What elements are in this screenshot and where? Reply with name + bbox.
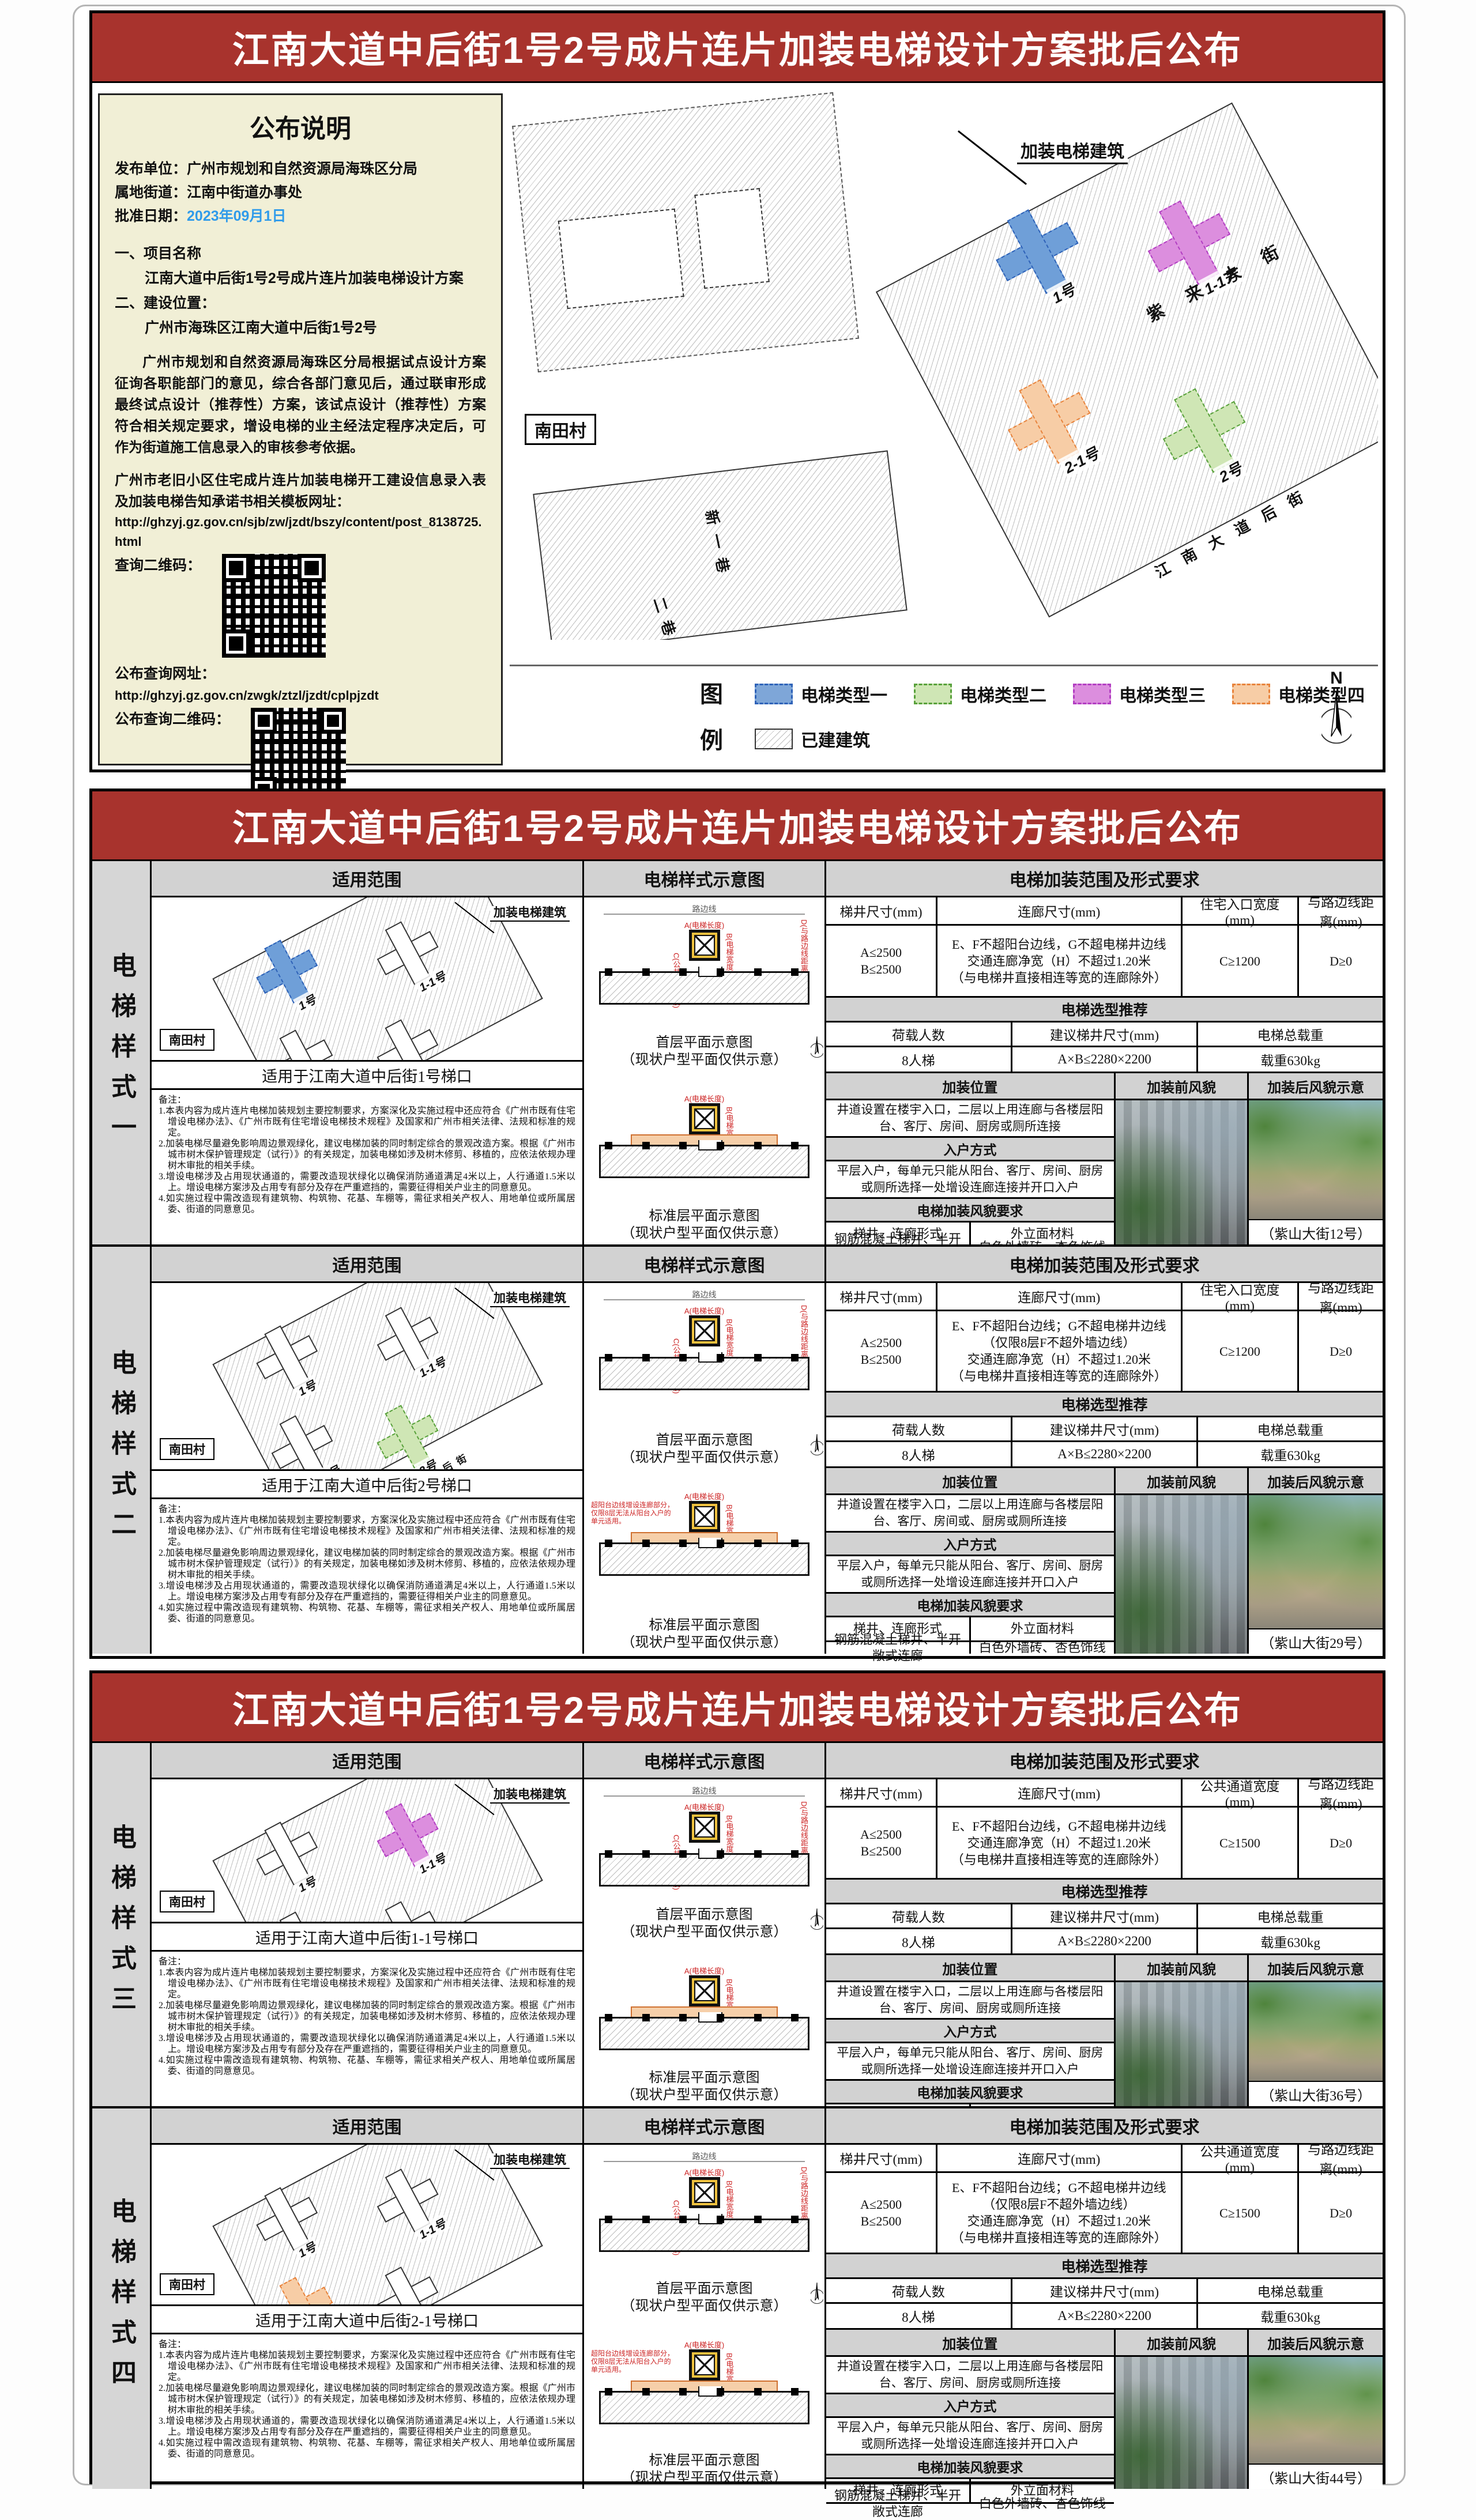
notice-paragraph-2: 广州市老旧小区住宅成片连片加装电梯开工建设信息录入表及加装电梯告知承诺书相关模板… <box>115 470 486 512</box>
compass-icon <box>811 1907 823 1937</box>
notes: 备注： 1.本表内容为成片连片电梯加装规划主要控制要求，方案深化及实施过程中还应… <box>152 1090 582 1244</box>
query-url-label: 公布查询网址： <box>115 662 486 686</box>
col-header-scope: 适用范围 <box>152 861 584 896</box>
panel-title: 江南大道中后街1号2号成片连片加装电梯设计方案批后公布 <box>92 13 1383 83</box>
legend-item: 电梯类型二 <box>914 681 1046 707</box>
photo-after <box>1249 1495 1383 1628</box>
qr2-label: 公布查询二维码： <box>115 708 230 731</box>
col-header-diagram: 电梯样式示意图 <box>584 1743 826 1778</box>
col-header-diagram: 电梯样式示意图 <box>584 2108 826 2143</box>
position-text: 井道设置在楼宇入口，二层以上用连廊与各楼层阳台、客厅、房间、厨房或厕所连接 <box>826 2357 1114 2393</box>
legend-swatch-type1 <box>755 684 793 704</box>
position-text: 井道设置在楼宇入口，二层以上用连廊与各楼层阳台、客厅、房间、厨房或厕所连接 <box>826 1982 1114 2018</box>
photo-before <box>1116 1495 1249 1654</box>
section2-title: 二、建设位置： <box>115 292 486 315</box>
site-map: 1号 1-1号 2-1号 2号 江南大道后街 紫来大街 加装电梯建筑 南田村 新… <box>510 91 1378 640</box>
standard-floor-plan: A(电梯长度) B(电梯宽度) 超阳台边线增设连廊部分，仅限8层无法从阳台入户的… <box>590 1471 819 1615</box>
approval-date: 2023年09月1日 <box>187 208 286 224</box>
notice-heading: 公布说明 <box>115 108 486 145</box>
scope-caption: 适用于江南大道中后街2号梯口 <box>152 1469 582 1499</box>
date-line: 批准日期：2023年09月1日 <box>115 205 486 228</box>
col-header-scope: 适用范围 <box>152 1247 584 1281</box>
standard-floor-caption: 标准层平面示意图（现状户型平面仅供示意） <box>584 2069 824 2106</box>
style-section-4: 电梯样式四 适用范围 电梯样式示意图 电梯加装范围及形式要求 1号 1-1号 2… <box>92 2106 1383 2489</box>
scope-map: 1号 1-1号 2-1号 2号 江南大道后街 加装电梯建筑 南田村 <box>152 897 582 1060</box>
col-header-req: 电梯加装范围及形式要求 <box>826 1247 1383 1281</box>
map-callout: 加装电梯建筑 <box>1017 137 1128 163</box>
scope-map: 1号 1-1号 2-1号 2号 江南大道后街 加装电梯建筑 南田村 <box>152 1779 582 1922</box>
panel-styles-1-2: 江南大道中后街1号2号成片连片加装电梯设计方案批后公布 电梯样式一 适用范围 电… <box>89 789 1385 1659</box>
compass-icon <box>811 1035 823 1065</box>
compass-icon <box>811 1433 823 1463</box>
elevator-shaft-icon <box>689 1812 720 1843</box>
standard-floor-caption: 标准层平面示意图（现状户型平面仅供示意） <box>584 1617 824 1654</box>
requirements-table: 梯井尺寸(mm) 连廊尺寸(mm) 住宅入口宽度(mm) 与路边线距离(mm) … <box>826 897 1383 1244</box>
elevator-shaft-icon <box>689 1103 720 1134</box>
legend-swatch-built <box>755 729 793 749</box>
map-callout: 加装电梯建筑 <box>490 1289 570 1306</box>
entry-text: 平层入户，每单元只能从阳台、客厅、房间、厨房或厕所选择一处增设连廊连接并开口入户 <box>826 1556 1114 1592</box>
first-floor-caption: 首层平面示意图（现状户型平面仅供示意） <box>584 1906 824 1943</box>
entry-text: 平层入户，每单元只能从阳台、客厅、房间、厨房或厕所选择一处增设连廊连接并开口入户 <box>826 1161 1114 1197</box>
first-floor-caption: 首层平面示意图（现状户型平面仅供示意） <box>584 2280 824 2317</box>
notes: 备注： 1.本表内容为成片连片电梯加装规划主要控制要求，方案深化及实施过程中还应… <box>152 2334 582 2489</box>
first-floor-plan: 路边线 A(电梯长度) B(电梯宽度) C(公共通道宽度) D(与路边线距离) <box>590 2147 819 2278</box>
style-row-label: 电梯样式二 <box>92 1247 152 1654</box>
village-label: 南田村 <box>160 2273 214 2295</box>
style-row-label: 电梯样式四 <box>92 2108 152 2489</box>
notice-box: 公布说明 发布单位：广州市规划和自然资源局海珠区分局 属地街道：江南中街道办事处… <box>98 93 503 765</box>
standard-floor-plan: A(电梯长度) B(电梯宽度) <box>590 1945 819 2068</box>
map-callout: 加装电梯建筑 <box>490 903 570 921</box>
standard-floor-plan: A(电梯长度) B(电梯宽度) 超阳台边线增设连廊部分，仅限8层无法从阳台入户的… <box>590 2319 819 2450</box>
panel-styles-3-4: 江南大道中后街1号2号成片连片加装电梯设计方案批后公布 电梯样式三 适用范围 电… <box>89 1670 1385 2484</box>
legend-item-built: 已建建筑 <box>755 726 870 752</box>
qr1-label: 查询二维码： <box>115 554 201 578</box>
photo-after <box>1249 1982 1383 2081</box>
query-url: http://ghzyj.gz.gov.cn/zwgk/ztzl/jzdt/cp… <box>115 686 486 706</box>
photo-after <box>1249 2357 1383 2464</box>
village-label: 南田村 <box>160 1029 214 1051</box>
village-label: 南田村 <box>160 1438 214 1460</box>
section2-text: 广州市海珠区江南大道中后街1号2号 <box>115 316 486 340</box>
col-header-diagram: 电梯样式示意图 <box>584 1247 826 1281</box>
photo-before <box>1116 1982 1249 2106</box>
village-label: 南田村 <box>525 414 596 445</box>
photo-caption: （紫山大街36号） <box>1249 2081 1383 2106</box>
section1-text: 江南大道中后街1号2号成片连片加装电梯设计方案 <box>115 267 486 291</box>
requirements-table: 梯井尺寸(mm) 连廊尺寸(mm) 公共通道宽度(mm) 与路边线距离(mm) … <box>826 2145 1383 2489</box>
first-floor-plan: 路边线 A(电梯长度) B(电梯宽度) C(公共通道宽度) D(与路边线距离) <box>590 1782 819 1904</box>
style-section-3: 电梯样式三 适用范围 电梯样式示意图 电梯加装范围及形式要求 1号 1-1号 2… <box>92 1743 1383 2106</box>
position-text: 井道设置在楼宇入口，二层以上用连廊与各楼层阳台、客厅、房间、厨房或厕所连接 <box>826 1100 1114 1136</box>
legend-swatch-type4 <box>1232 684 1270 704</box>
legend-item: 电梯类型三 <box>1073 681 1206 707</box>
legend-item: 电梯类型一 <box>755 681 887 707</box>
standard-floor-caption: 标准层平面示意图（现状户型平面仅供示意） <box>584 1208 824 1244</box>
panel-title: 江南大道中后街1号2号成片连片加装电梯设计方案批后公布 <box>92 791 1383 861</box>
elevator-shaft-icon <box>689 2349 720 2381</box>
photo-before <box>1116 2357 1249 2489</box>
scope-map: 1号 1-1号 2-1号 2号 江南大道后街 加装电梯建筑 南田村 <box>152 1283 582 1469</box>
first-floor-plan: 路边线 A(电梯长度) B(电梯宽度) C(公共通道宽度) D(与路边线距离) <box>590 1285 819 1429</box>
photo-caption: （紫山大街12号） <box>1249 1219 1383 1244</box>
photo-after <box>1249 1100 1383 1219</box>
panel-title: 江南大道中后街1号2号成片连片加装电梯设计方案批后公布 <box>92 1673 1383 1743</box>
notice-paragraph-1: 广州市规划和自然资源局海珠区分局根据试点设计方案征询各职能部门的意见，综合各部门… <box>115 352 486 458</box>
qr-code-template <box>222 554 326 658</box>
elevator-shaft-icon <box>689 1501 720 1532</box>
requirements-table: 梯井尺寸(mm) 连廊尺寸(mm) 住宅入口宽度(mm) 与路边线距离(mm) … <box>826 1283 1383 1654</box>
col-header-req: 电梯加装范围及形式要求 <box>826 861 1383 896</box>
standard-floor-plan: A(电梯长度) B(电梯宽度) <box>590 1073 819 1205</box>
photo-caption: （紫山大街44号） <box>1249 2464 1383 2489</box>
standard-floor-caption: 标准层平面示意图（现状户型平面仅供示意） <box>584 2452 824 2489</box>
elevator-shaft-icon <box>689 2177 720 2208</box>
legend-title-1: 图 <box>700 676 723 709</box>
style-row-label: 电梯样式一 <box>92 861 152 1244</box>
map-callout: 加装电梯建筑 <box>490 2151 570 2168</box>
first-floor-caption: 首层平面示意图（现状户型平面仅供示意） <box>584 1432 824 1469</box>
legend-swatch-type2 <box>914 684 952 704</box>
scope-caption: 适用于江南大道中后街2-1号梯口 <box>152 2304 582 2334</box>
village-label: 南田村 <box>160 1891 214 1912</box>
position-text: 井道设置在楼宇入口，二层以上用连廊与各楼层阳台、客厅、房间或、厨房或厕所连接 <box>826 1495 1114 1531</box>
legend-title-2: 例 <box>700 722 723 755</box>
legend: 图 例 电梯类型一 电梯类型二 电梯类型三 电梯类型四 已建建筑 N <box>510 665 1378 768</box>
entry-text: 平层入户，每单元只能从阳台、客厅、房间、厨房或厕所选择一处增设连廊连接并开口入户 <box>826 2043 1114 2079</box>
photo-caption: （紫山大街29号） <box>1249 1628 1383 1654</box>
scope-map: 1号 1-1号 2-1号 2号 江南大道后街 加装电梯建筑 南田村 <box>152 2145 582 2304</box>
north-compass: N <box>1321 669 1351 756</box>
legend-swatch-type3 <box>1073 684 1111 704</box>
style-section-2: 电梯样式二 适用范围 电梯样式示意图 电梯加装范围及形式要求 1号 1-1号 2… <box>92 1244 1383 1654</box>
notes: 备注： 1.本表内容为成片连片电梯加装规划主要控制要求，方案深化及实施过程中还应… <box>152 1952 582 2106</box>
col-header-scope: 适用范围 <box>152 2108 584 2143</box>
col-header-req: 电梯加装范围及形式要求 <box>826 2108 1383 2143</box>
first-floor-plan: 路边线 A(电梯长度) B(电梯宽度) C(公共通道宽度) D(与路边线距离) <box>590 900 819 1032</box>
style-row-label: 电梯样式三 <box>92 1743 152 2106</box>
col-header-req: 电梯加装范围及形式要求 <box>826 1743 1383 1778</box>
elevator-shaft-icon <box>689 1975 720 2006</box>
compass-icon <box>811 2281 823 2311</box>
template-url: http://ghzyj.gz.gov.cn/sjb/zw/jzdt/bszy/… <box>115 512 486 552</box>
style-section-1: 电梯样式一 适用范围 电梯样式示意图 电梯加装范围及形式要求 1号 1-1号 2… <box>92 861 1383 1244</box>
panel-overview: 江南大道中后街1号2号成片连片加装电梯设计方案批后公布 公布说明 发布单位：广州… <box>89 10 1385 772</box>
col-header-scope: 适用范围 <box>152 1743 584 1778</box>
scope-caption: 适用于江南大道中后街1号梯口 <box>152 1060 582 1090</box>
scope-caption: 适用于江南大道中后街1-1号梯口 <box>152 1922 582 1952</box>
requirements-table: 梯井尺寸(mm) 连廊尺寸(mm) 公共通道宽度(mm) 与路边线距离(mm) … <box>826 1779 1383 2106</box>
section1-title: 一、项目名称 <box>115 242 486 266</box>
entry-text: 平层入户，每单元只能从阳台、客厅、房间、厨房或厕所选择一处增设连廊连接并开口入户 <box>826 2418 1114 2454</box>
photo-before <box>1116 1100 1249 1244</box>
notes: 备注： 1.本表内容为成片连片电梯加装规划主要控制要求，方案深化及实施过程中还应… <box>152 1499 582 1654</box>
col-header-diagram: 电梯样式示意图 <box>584 861 826 896</box>
map-callout: 加装电梯建筑 <box>490 1785 570 1802</box>
elevator-shaft-icon <box>689 930 720 961</box>
street-line: 属地街道：江南中街道办事处 <box>115 181 486 205</box>
elevator-shaft-icon <box>689 1315 720 1346</box>
publisher-line: 发布单位：广州市规划和自然资源局海珠区分局 <box>115 157 486 181</box>
first-floor-caption: 首层平面示意图（现状户型平面仅供示意） <box>584 1034 824 1071</box>
